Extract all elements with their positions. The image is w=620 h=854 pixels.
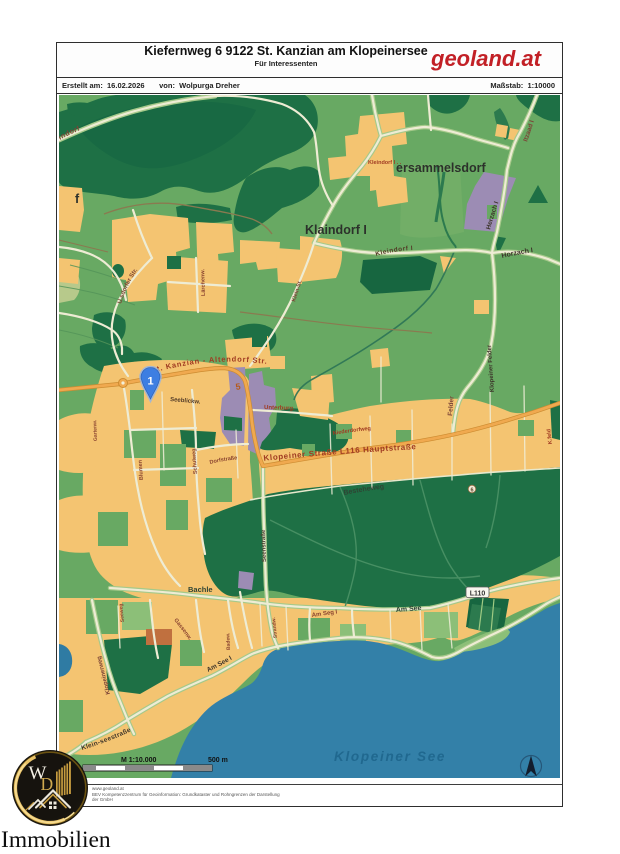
svg-text:Lärchenw.: Lärchenw. [200, 268, 207, 296]
svg-text:500 m: 500 m [208, 757, 228, 764]
svg-text:6: 6 [470, 488, 473, 494]
svg-text:1: 1 [147, 376, 153, 388]
svg-text:Klaindorf I: Klaindorf I [305, 223, 367, 237]
svg-text:Unterburg.: Unterburg. [264, 405, 295, 412]
svg-text:M 1:10.000: M 1:10.000 [121, 757, 157, 764]
svg-text:Badew.: Badew. [225, 632, 232, 650]
svg-text:L110: L110 [470, 591, 486, 598]
svg-text:Bachle: Bachle [188, 585, 213, 594]
svg-text:Klopeiner See: Klopeiner See [334, 749, 446, 764]
svg-text:Seenstraße: Seenstraße [261, 529, 268, 562]
svg-text:Gartenw.: Gartenw. [92, 419, 99, 441]
svg-text:ersammelsdorf: ersammelsdorf [396, 161, 486, 175]
